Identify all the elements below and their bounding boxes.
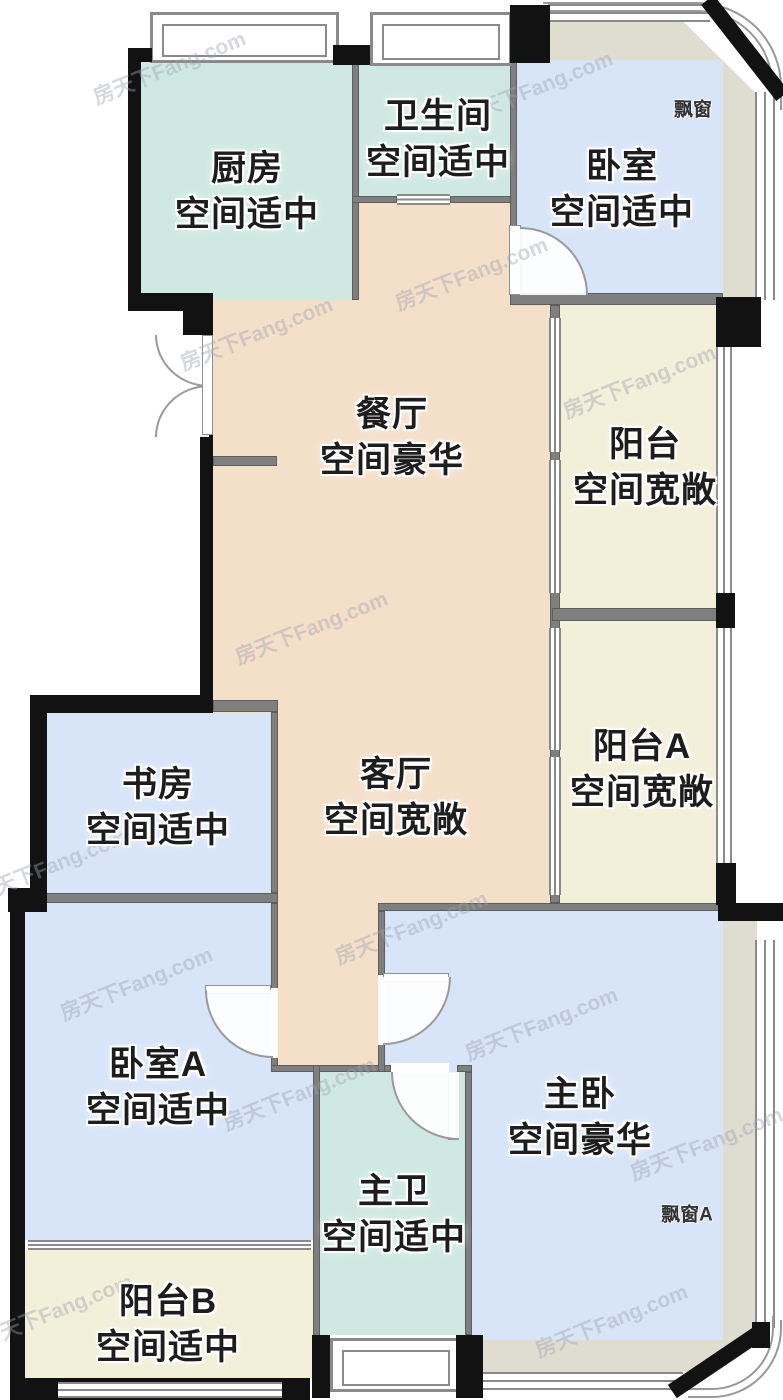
room-label-balcony: 阳台 空间宽敞 (573, 422, 717, 514)
window-corner-curve-top-right-inner (543, 10, 773, 108)
room-name: 主卫 (322, 1169, 466, 1215)
wall-segment (10, 890, 25, 1400)
wall-segment (456, 1335, 483, 1398)
room-name: 厨房 (175, 146, 319, 192)
wall-segment (313, 1065, 320, 1340)
room-name: 客厅 (324, 752, 468, 798)
window-master-bath-bottom (330, 1338, 462, 1392)
room-size: 空间豪华 (320, 438, 464, 484)
wall-segment (271, 903, 278, 990)
room-label-bathroom: 卫生间 空间适中 (366, 94, 510, 186)
door-leaf-entry (202, 335, 213, 435)
room-size: 空间适中 (322, 1215, 466, 1261)
room-name: 阳台B (96, 1279, 240, 1325)
wall-segment (510, 60, 517, 227)
bay-window-platform-master-right (723, 918, 757, 1342)
room-size: 空间宽敞 (570, 770, 714, 816)
window-master-bay-bottom (483, 1372, 683, 1390)
bay-window-label: 飘窗 (674, 95, 712, 122)
wall-segment (30, 695, 213, 713)
wall-segment (128, 48, 141, 310)
window-bathroom-top (370, 12, 512, 66)
door-arc-entry-upper (155, 335, 209, 387)
wall-segment (333, 45, 370, 65)
wall-segment (271, 712, 278, 893)
wall-segment (352, 60, 359, 300)
wall-segment (716, 863, 736, 905)
room-size: 空间适中 (86, 1088, 230, 1134)
window-living-balcony-3 (549, 628, 561, 750)
room-label-bedroom: 卧室 空间适中 (550, 144, 694, 236)
room-size: 空间豪华 (508, 1118, 652, 1164)
door-arc-entry-lower (155, 385, 209, 437)
window-master-bay-right (755, 940, 775, 1328)
wall-segment (378, 903, 723, 911)
window-bay-right (755, 92, 775, 300)
wall-segment (716, 593, 735, 628)
wall-segment (213, 700, 278, 712)
room-size: 空间适中 (175, 192, 319, 238)
corridor-bathroom (359, 203, 510, 300)
wall-segment (378, 1043, 385, 1072)
window-living-balcony-4 (549, 757, 561, 895)
window-pane (382, 24, 500, 60)
wall-segment (25, 893, 278, 903)
wall-segment (552, 608, 718, 621)
room-size: 空间适中 (96, 1325, 240, 1371)
wall-segment (271, 1065, 391, 1072)
room-size: 空间宽敞 (324, 798, 468, 844)
wall-segment (183, 293, 213, 335)
window-pane (162, 24, 327, 57)
corridor-bottom (278, 903, 378, 1072)
wall-segment (718, 903, 783, 921)
wall-segment (200, 435, 213, 697)
room-name: 阳台 (573, 422, 717, 468)
room-name: 卧室A (86, 1042, 230, 1088)
room-label-living: 客厅 空间宽敞 (324, 752, 468, 844)
room-size: 空间适中 (550, 190, 694, 236)
wall-segment (716, 297, 761, 347)
room-name: 卫生间 (366, 94, 510, 140)
window-bedroom-a-balcony-b (28, 1240, 311, 1250)
bay-window-label-a: 飘窗A (661, 1200, 713, 1227)
wall-segment (30, 695, 47, 895)
window-living-balcony-2 (549, 460, 561, 593)
wall-segment (450, 196, 517, 203)
room-label-study: 书房 空间适中 (86, 762, 230, 854)
room-name: 书房 (86, 762, 230, 808)
window-balcony-b-bottom (58, 1382, 282, 1398)
wall-segment (510, 5, 550, 63)
window-living-balcony-1 (549, 318, 561, 452)
room-label-kitchen: 厨房 空间适中 (175, 146, 319, 238)
wall-partition-stub (213, 456, 277, 466)
window-balcony-right (716, 345, 732, 593)
room-name: 主卧 (508, 1072, 652, 1118)
room-label-bedroom-a: 卧室A 空间适中 (86, 1042, 230, 1134)
window-kitchen-top (150, 12, 339, 63)
room-label-balcony-b: 阳台B 空间适中 (96, 1279, 240, 1371)
wall-segment (312, 1335, 330, 1398)
room-size: 空间宽敞 (573, 468, 717, 514)
room-name: 阳台A (570, 724, 714, 770)
room-label-balcony-a: 阳台A 空间宽敞 (570, 724, 714, 816)
floor-plan: 厨房 空间适中 卫生间 空间适中 卧室 空间适中 餐厅 空间豪华 阳台 空间宽敞… (0, 0, 783, 1400)
wall-segment (378, 911, 385, 975)
room-size: 空间适中 (366, 140, 510, 186)
wall-segment (352, 196, 397, 203)
room-name: 餐厅 (320, 392, 464, 438)
room-label-master-bedroom: 主卧 空间豪华 (508, 1072, 652, 1164)
window-pane (342, 1350, 450, 1386)
wall-segment (457, 1065, 472, 1072)
room-label-dining: 餐厅 空间豪华 (320, 392, 464, 484)
room-size: 空间适中 (86, 808, 230, 854)
door-bathroom-slider (397, 194, 450, 205)
wall-segment (465, 1072, 472, 1335)
room-name: 卧室 (550, 144, 694, 190)
room-label-master-bath: 主卫 空间适中 (322, 1169, 466, 1261)
window-balcony-a-right (716, 628, 732, 863)
